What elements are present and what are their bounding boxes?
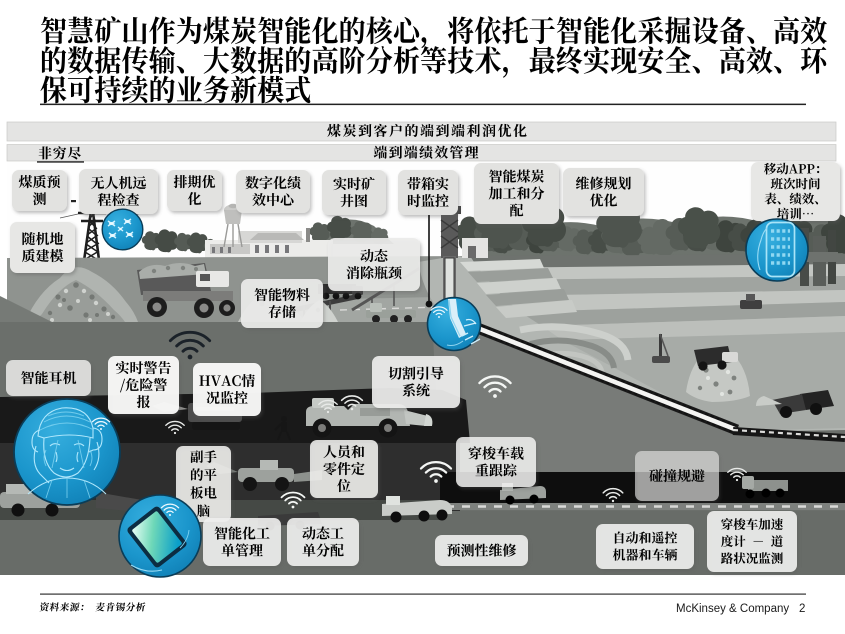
svg-text:2: 2 (799, 603, 805, 615)
svg-text:McKinsey & Company: McKinsey & Company (676, 603, 789, 615)
